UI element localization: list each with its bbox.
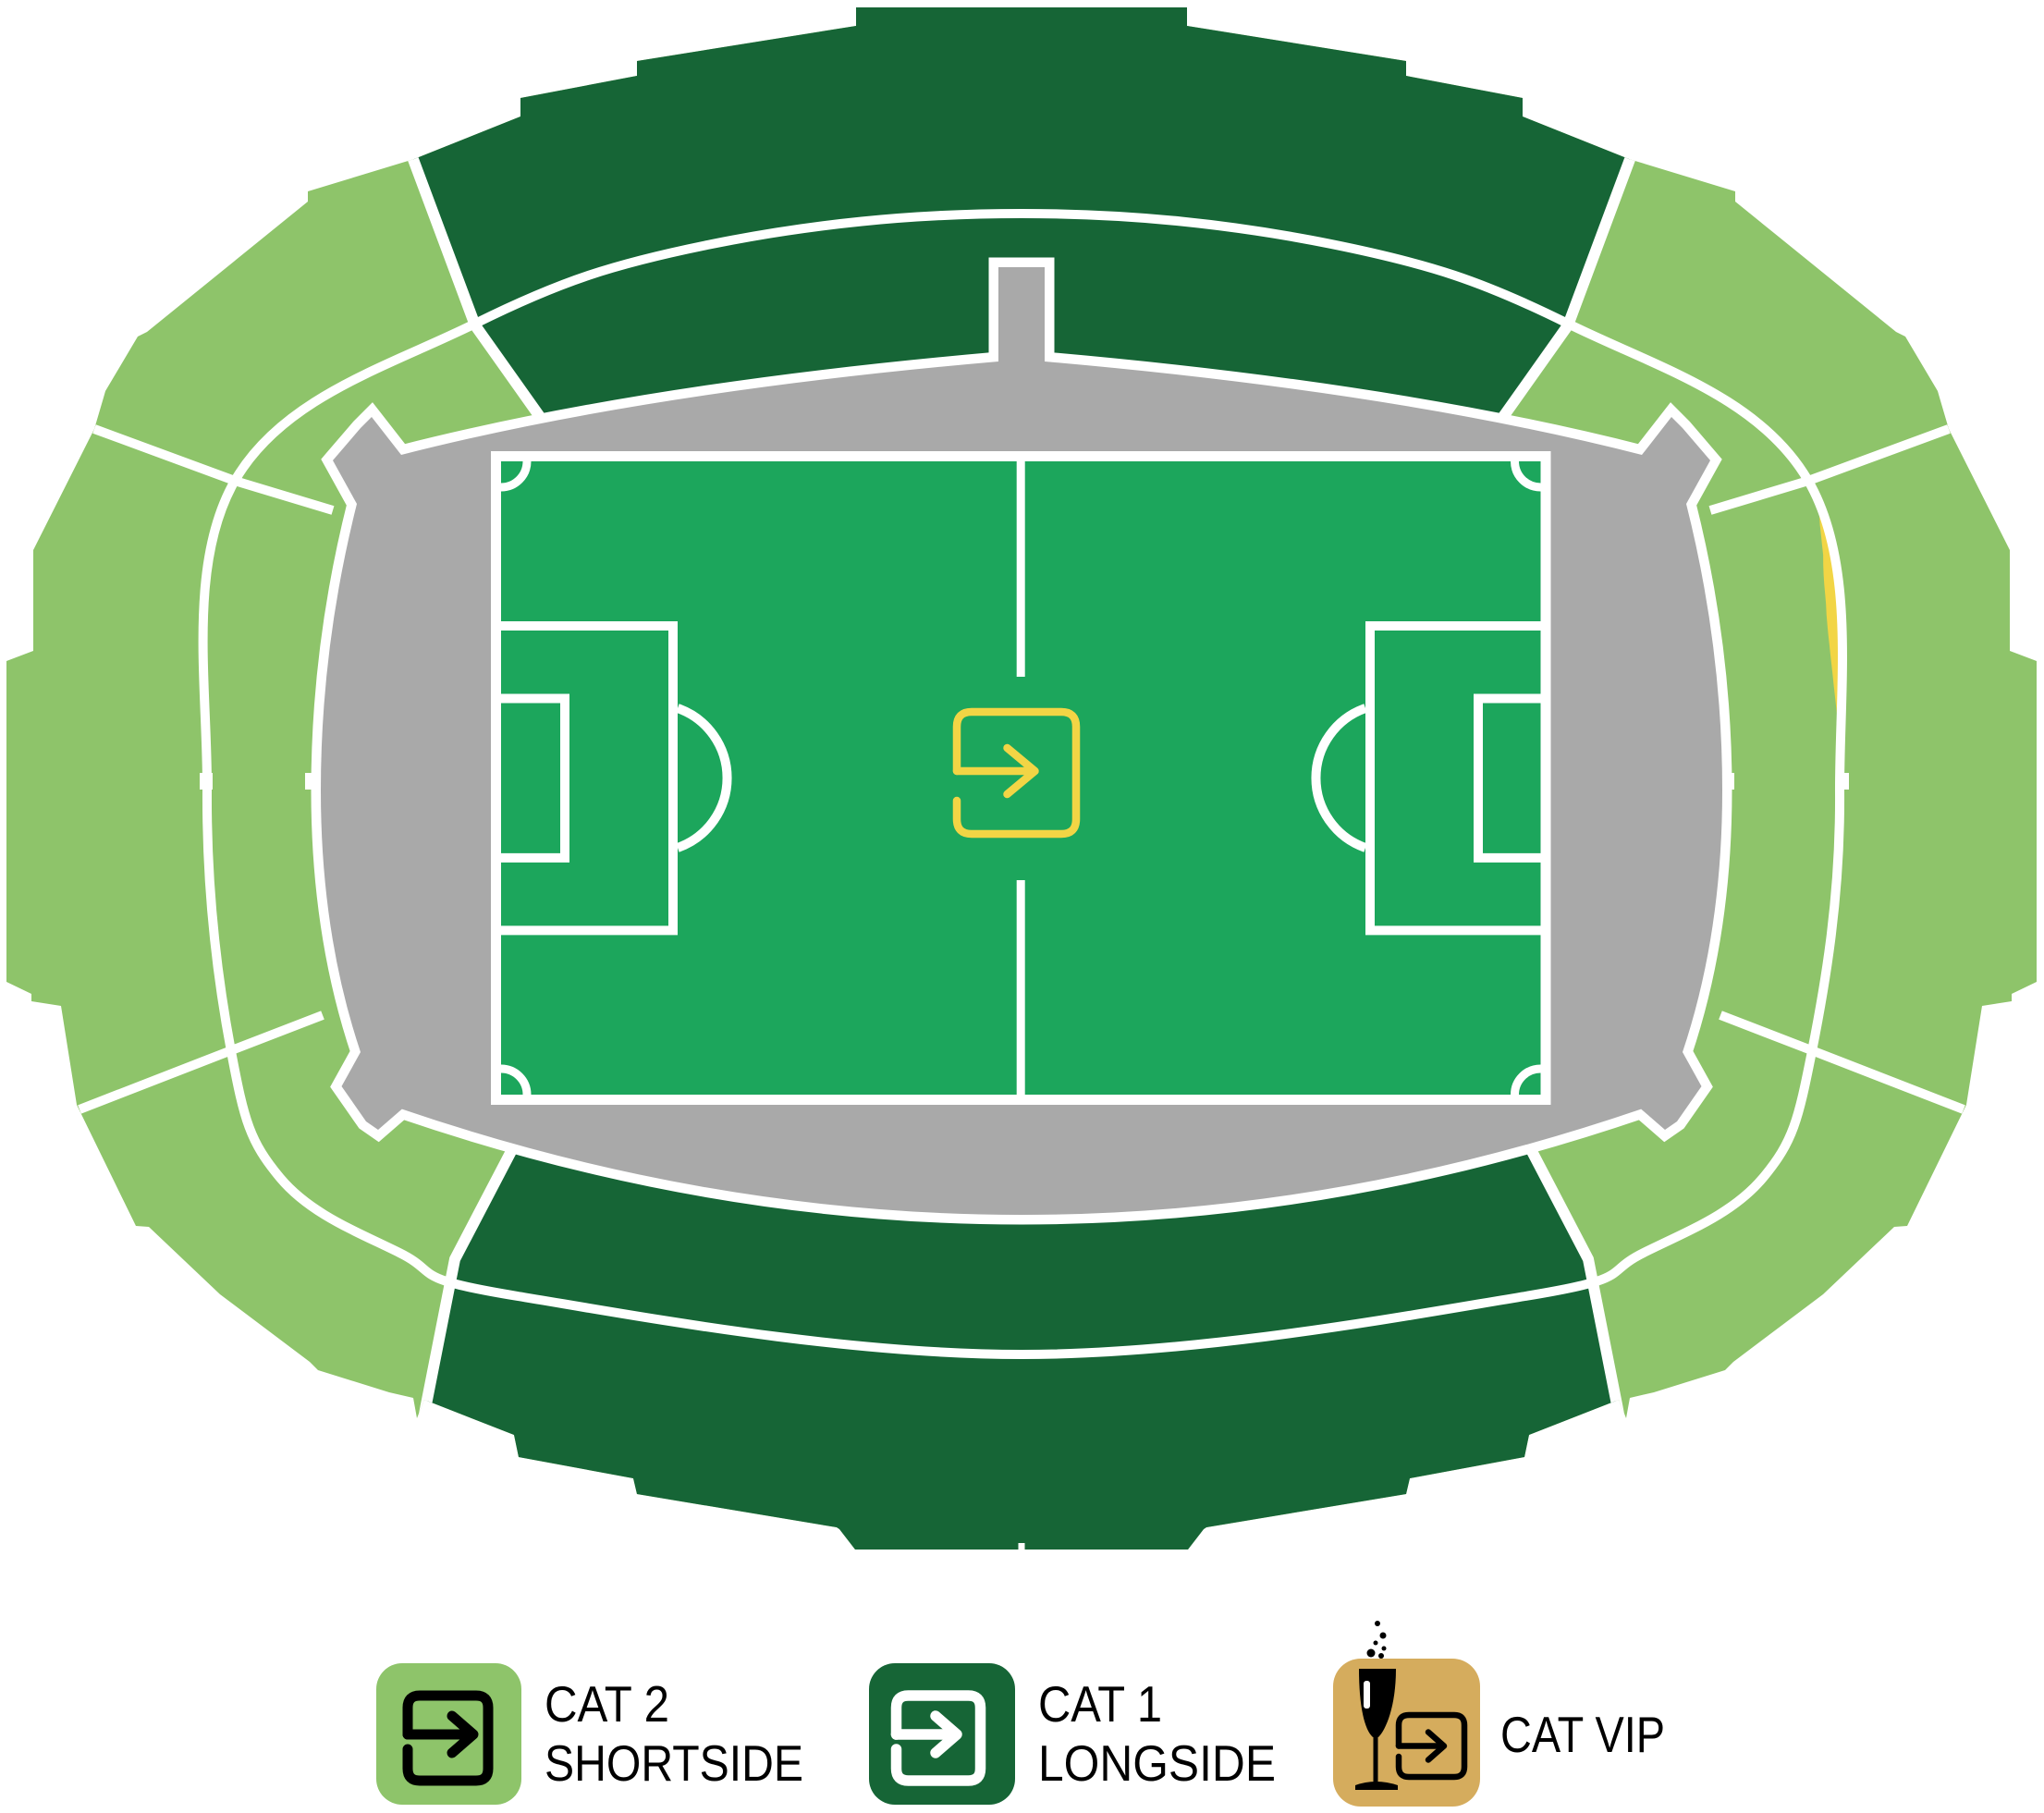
svg-text:CAT VIP: CAT VIP — [1500, 1706, 1665, 1763]
svg-text:CAT 1: CAT 1 — [1038, 1675, 1162, 1733]
svg-text:CAT 2: CAT 2 — [545, 1675, 669, 1733]
svg-text:SHORTSIDE: SHORTSIDE — [545, 1734, 803, 1792]
svg-text:LONGSIDE: LONGSIDE — [1038, 1734, 1276, 1792]
